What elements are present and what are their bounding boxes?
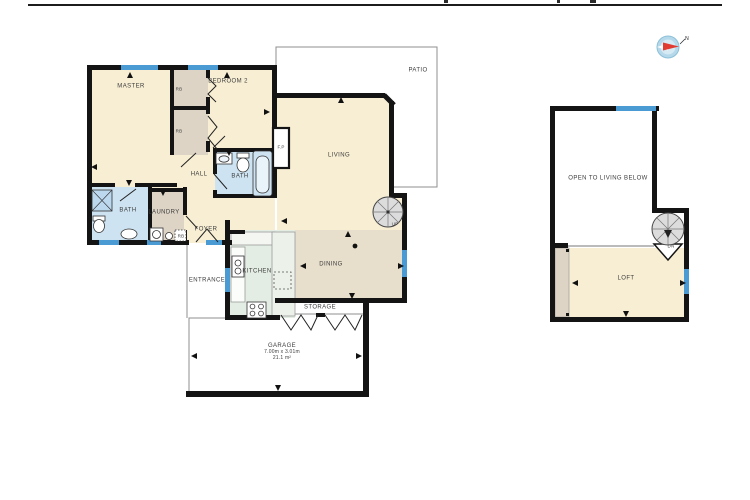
room-label-living: LIVING xyxy=(328,152,350,159)
stair-label-up: UP xyxy=(392,221,399,226)
room-label-loft: LOFT xyxy=(618,275,635,282)
room-label-storage: STORAGE xyxy=(304,304,336,311)
garage-area: 21.1 m² xyxy=(264,355,300,361)
room-label-kitchen: KITCHEN xyxy=(242,268,271,275)
room-label-bedroom2: BEDROOM 2 xyxy=(208,78,248,85)
dining-column-dot xyxy=(353,244,358,249)
room-label-dining: DINING xyxy=(319,261,342,268)
room-label-ensuite: BATH xyxy=(119,207,136,214)
room-label-robe2: RB xyxy=(176,128,183,133)
room-label-patio: PATIO xyxy=(408,67,427,74)
room-label-entrance: ENTRANCE xyxy=(189,277,225,284)
room-label-laundry-robe: RB xyxy=(178,233,185,238)
room-label-hall: HALL xyxy=(191,171,208,178)
floorplan-page: MASTER BEDROOM 2 RB RB HALL BATH BATH LA… xyxy=(0,0,750,500)
spiral-stair-down xyxy=(652,213,684,245)
room-label-open-to-living-below: OPEN TO LIVING BELOW xyxy=(568,175,647,182)
compass-north-label: N xyxy=(685,36,689,42)
room-label-master: MASTER xyxy=(117,83,144,90)
compass-icon xyxy=(657,36,685,58)
room-fills xyxy=(89,67,407,318)
room-label-fireplace: F.P xyxy=(277,144,284,149)
room-label-foyer: FOYER xyxy=(195,226,218,233)
floor-plan-drawing xyxy=(0,0,750,500)
garage-label-block: GARAGE 7.00m x 3.01m 21.1 m² xyxy=(264,343,300,362)
spiral-stair-up xyxy=(373,197,403,227)
room-label-robe1: RB xyxy=(176,86,183,91)
stair-label-dn: DN xyxy=(668,243,675,248)
room-label-bath: BATH xyxy=(231,173,248,180)
room-label-laundry: LAUNDRY xyxy=(148,209,179,216)
